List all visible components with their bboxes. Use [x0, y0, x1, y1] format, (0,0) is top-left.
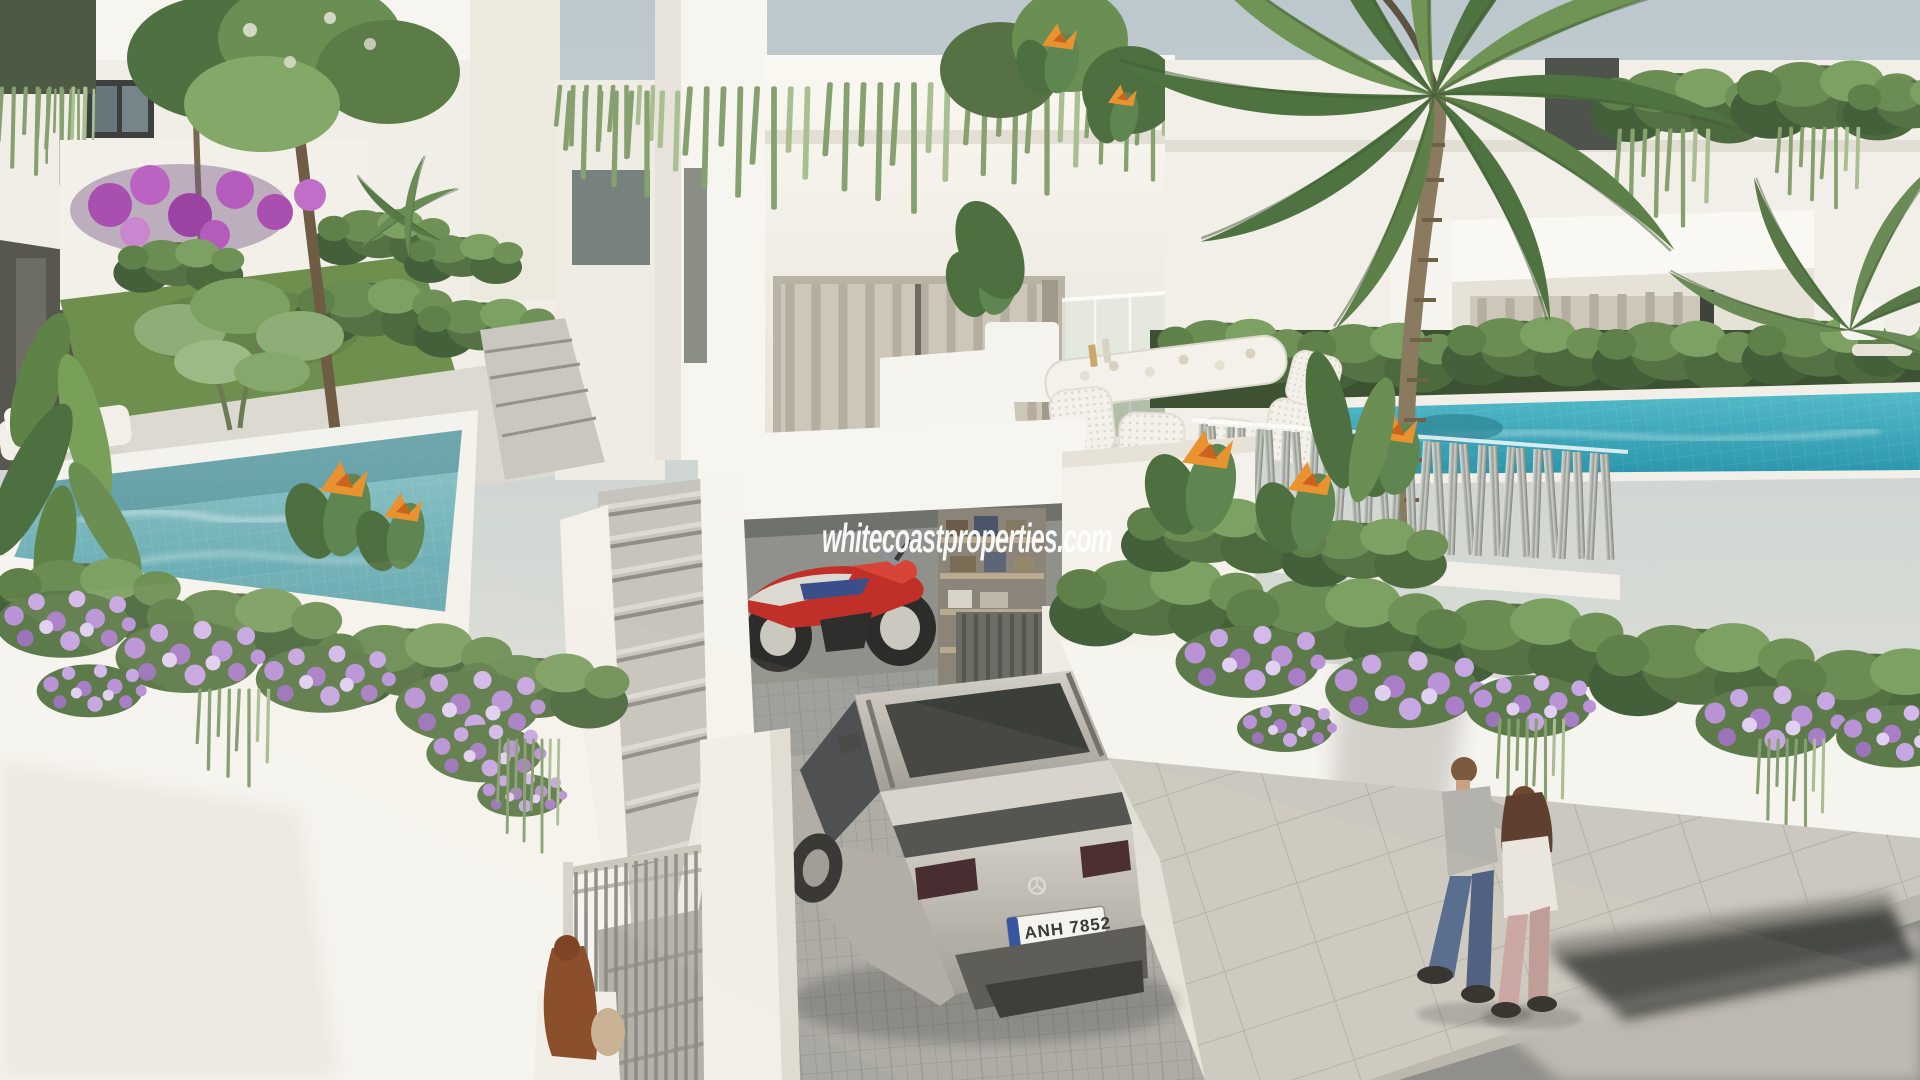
architectural-render: ANH 7852: [0, 0, 1920, 1080]
watermark-text: whitecoastproperties.com: [822, 515, 1112, 561]
